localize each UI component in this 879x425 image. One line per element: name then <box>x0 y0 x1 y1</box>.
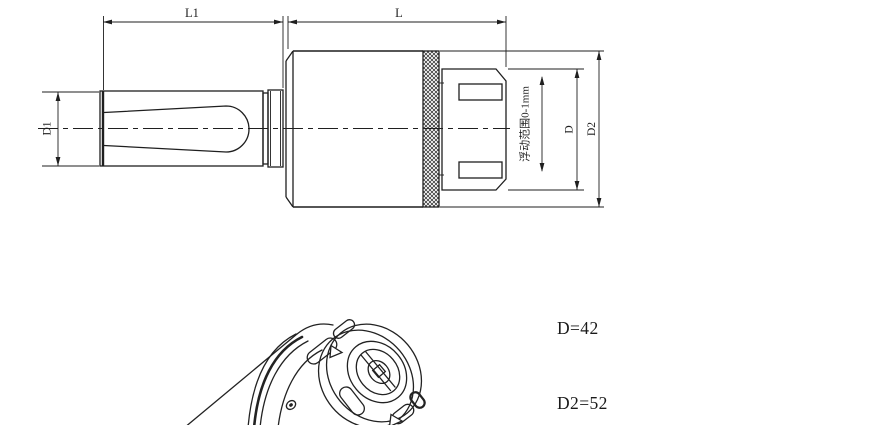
drawing-canvas: L1 L D1 <box>0 0 879 425</box>
dimension-l1 <box>103 16 283 90</box>
label-d: D <box>564 125 576 133</box>
spec-line-d2: D2=52 <box>557 391 694 416</box>
iso-set-screw-center <box>288 402 293 407</box>
iso-body-top-transition <box>297 324 333 334</box>
body-chamfer-top <box>286 51 293 61</box>
label-d2: D2 <box>586 122 598 136</box>
body-chamfer-bottom <box>286 197 293 207</box>
iso-body-silhouette <box>184 334 297 425</box>
iso-ring-arc-4 <box>278 350 322 425</box>
nose-slot-upper <box>459 84 502 100</box>
dimension-l <box>288 16 506 67</box>
knurl-band <box>423 51 439 207</box>
iso-ring-arc-3 <box>260 341 308 425</box>
side-view: L1 L D1 <box>38 6 604 207</box>
iso-lug-top <box>331 318 356 341</box>
iso-collet-bore <box>364 356 395 387</box>
label-l1: L1 <box>185 6 199 20</box>
label-d1: D1 <box>42 121 54 135</box>
label-l: L <box>395 6 403 20</box>
label-float-range: 浮动范围0-1mm <box>518 86 532 162</box>
shank-taper-flat <box>104 106 249 152</box>
nose-outline <box>442 69 506 190</box>
iso-view <box>184 305 441 425</box>
technical-drawing-page: L1 L D1 <box>0 0 879 425</box>
spec-text-block: D=42 D2=52 L=73. 2 D1=25, L1=58; D1=20, … <box>557 266 694 425</box>
nose-slot-lower <box>459 162 502 178</box>
spec-line-d: D=42 <box>557 316 694 341</box>
float-range-arrow <box>540 76 545 172</box>
